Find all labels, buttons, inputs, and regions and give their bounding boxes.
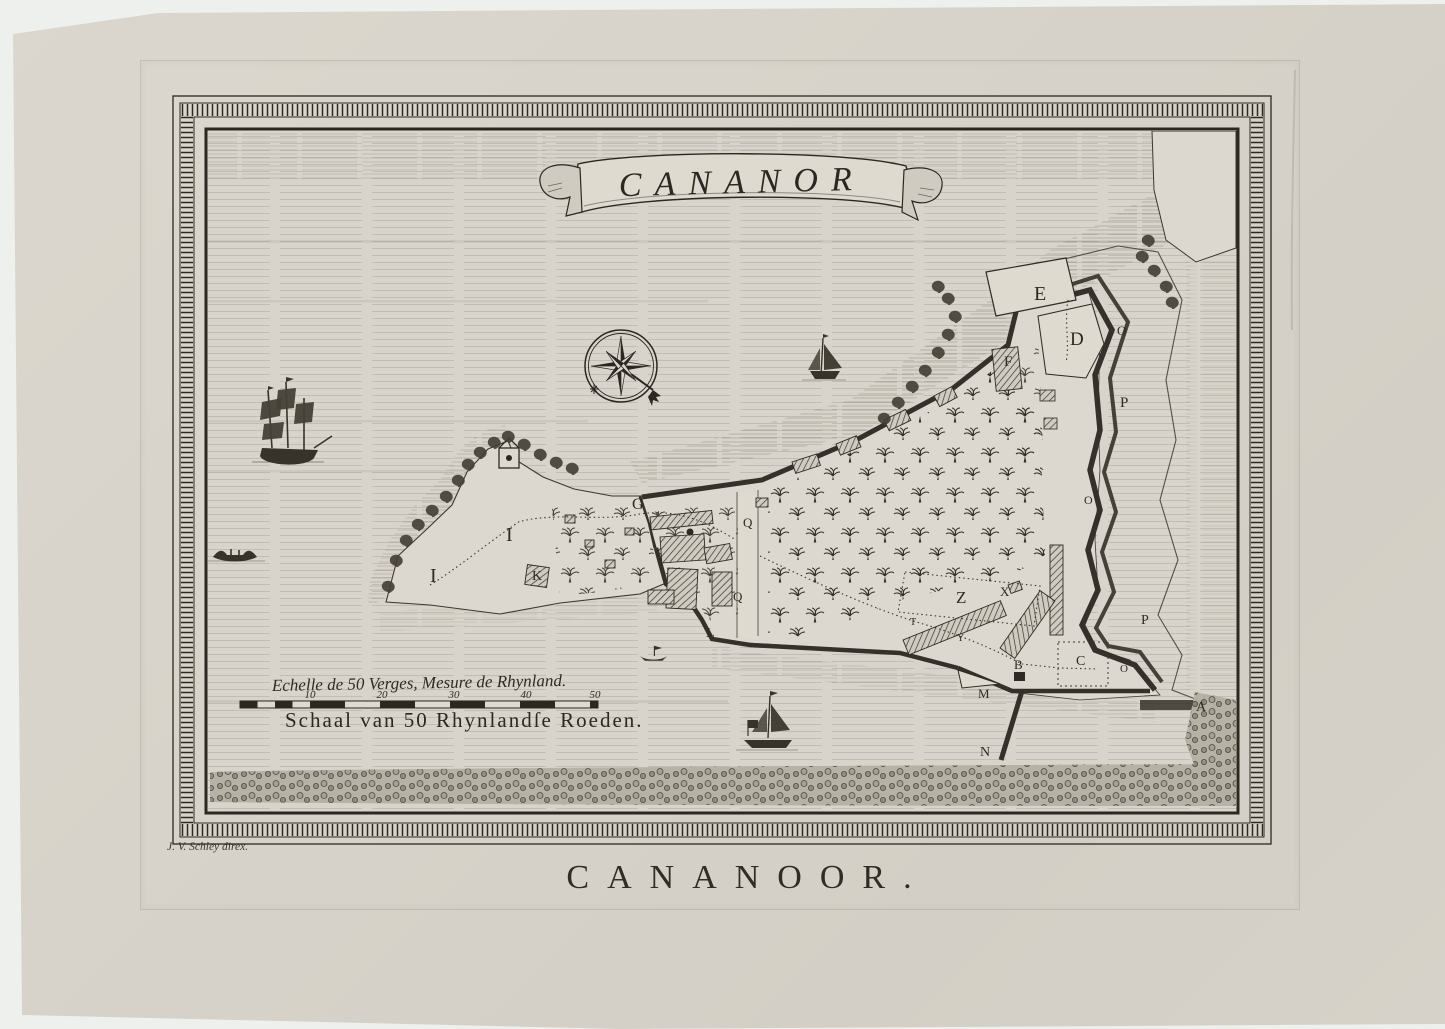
scanned-print: CANANOR Echelle de 50 Verges, Mesure de … <box>0 0 1445 1029</box>
scale-label-dutch: Schaal van 50 Rhynlandſe Roeden. <box>285 708 644 732</box>
map-label: O <box>1117 323 1126 338</box>
map-label: Q <box>733 589 743 604</box>
engraved-map: CANANOR Echelle de 50 Verges, Mesure de … <box>0 0 1445 1029</box>
map-label: N <box>980 745 990 760</box>
scale-tick: 10 <box>305 689 317 701</box>
map-label: G <box>632 496 644 513</box>
scale-tick: 30 <box>448 689 461 701</box>
map-label: O <box>1084 493 1093 507</box>
map-label: M <box>978 686 990 701</box>
paper-crease <box>1292 70 1295 330</box>
map-label: F <box>1004 354 1012 370</box>
map-label: Y <box>957 633 964 644</box>
map-label: O <box>1120 663 1128 675</box>
scale-tick: 20 <box>377 689 389 701</box>
engraver-signature: J. V. Schley direx. <box>167 841 248 853</box>
map-label: P <box>1141 613 1149 628</box>
map-label: E <box>1034 283 1046 305</box>
map-label: L <box>706 626 715 641</box>
banner-title: CANANOR <box>618 161 865 204</box>
map-label: T <box>910 617 916 628</box>
map-label: P <box>1120 395 1128 411</box>
map-label: I <box>506 524 513 546</box>
map-label: A <box>1196 700 1207 715</box>
map-label: X <box>1000 584 1010 599</box>
rocky-shoreline <box>210 764 1236 806</box>
map-label: Q <box>743 515 753 530</box>
map-label: D <box>1070 329 1084 350</box>
map-content: CANANOR Echelle de 50 Verges, Mesure de … <box>207 131 1237 812</box>
bottom-title: CANANOOR. <box>566 859 929 896</box>
map-label: K <box>532 569 542 584</box>
map-label: Z <box>956 588 966 607</box>
map-label: I <box>430 565 437 587</box>
scale-tick: 50 <box>590 689 602 701</box>
map-label: B <box>1014 657 1023 672</box>
map-label: C <box>1076 654 1085 669</box>
scale-tick: 40 <box>521 689 533 701</box>
